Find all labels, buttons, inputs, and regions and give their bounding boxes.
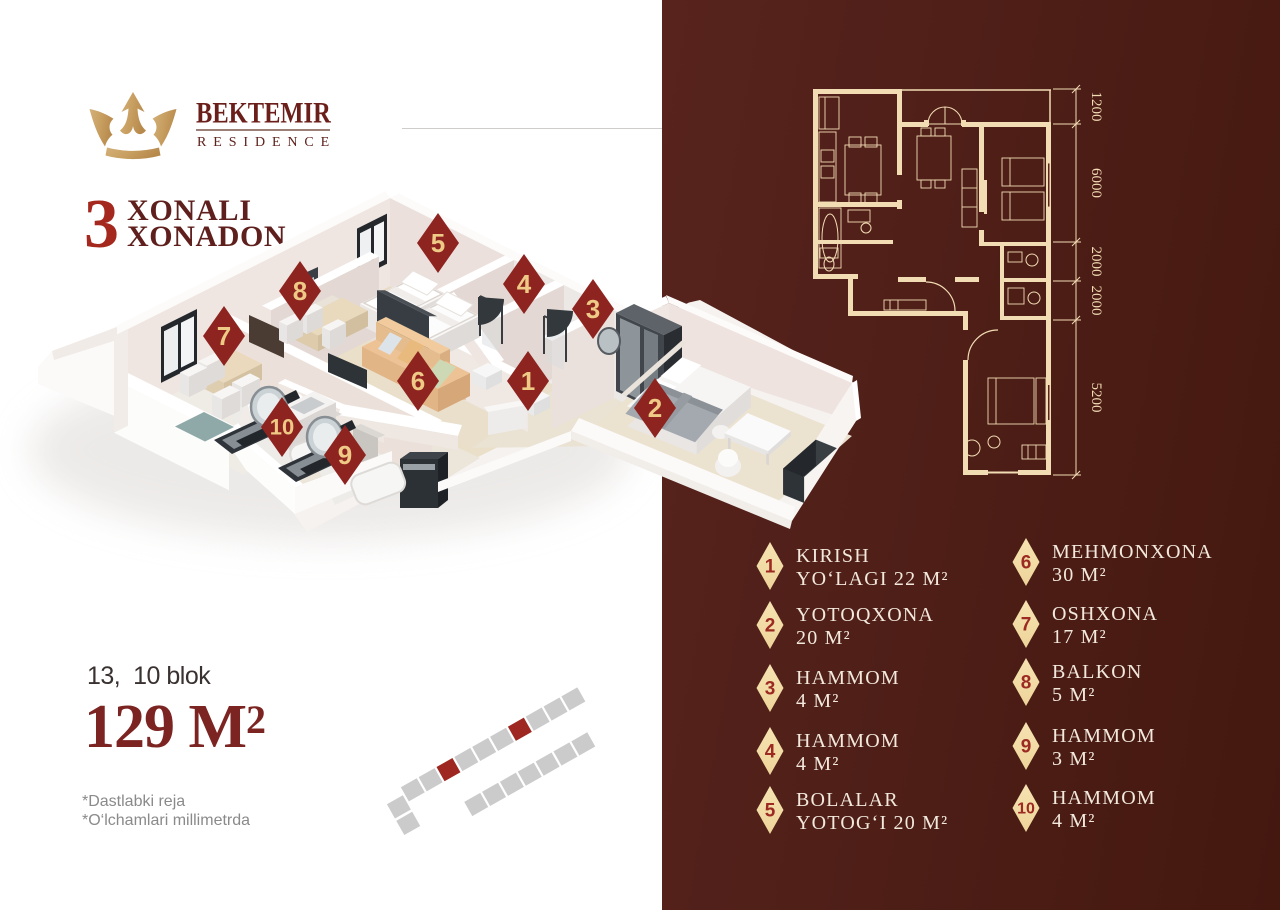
svg-text:3: 3 [765,678,776,699]
svg-text:8: 8 [1021,672,1032,693]
svg-text:4 M²: 4 M² [796,753,840,775]
svg-text:2000: 2000 [1088,247,1104,277]
svg-text:8: 8 [293,276,307,306]
svg-text:1: 1 [521,366,535,396]
svg-text:YOTOQXONA: YOTOQXONA [796,604,934,626]
svg-text:3: 3 [586,294,600,324]
svg-text:KIRISH: KIRISH [796,545,870,567]
svg-text:30 M²: 30 M² [1052,564,1107,586]
svg-text:OSHXONA: OSHXONA [1052,603,1158,625]
svg-text:HAMMOM: HAMMOM [796,667,900,689]
svg-text:2000: 2000 [1088,286,1104,316]
svg-text:9: 9 [338,440,352,470]
svg-text:5 M²: 5 M² [1052,684,1096,706]
svg-text:9: 9 [1021,736,1032,757]
svg-text:17 M²: 17 M² [1052,626,1107,648]
svg-text:4 M²: 4 M² [796,690,840,712]
svg-text:1200: 1200 [1088,92,1104,122]
svg-text:6: 6 [411,366,425,396]
svg-text:7: 7 [217,321,231,351]
svg-text:2: 2 [765,615,776,636]
svg-text:MEHMONXONA: MEHMONXONA [1052,541,1213,563]
svg-text:YOTOG‘I 20 M²: YOTOG‘I 20 M² [796,812,948,834]
svg-text:1: 1 [765,556,776,577]
svg-text:10: 10 [270,414,294,439]
svg-text:3 M²: 3 M² [1052,748,1096,770]
svg-text:BALKON: BALKON [1052,661,1143,683]
svg-text:2: 2 [648,393,662,423]
svg-text:BOLALAR: BOLALAR [796,789,899,811]
svg-text:YO‘LAGI 22 M²: YO‘LAGI 22 M² [796,568,949,590]
svg-text:4 M²: 4 M² [1052,810,1096,832]
svg-text:6000: 6000 [1088,168,1104,198]
svg-text:5: 5 [765,800,776,821]
svg-text:4: 4 [517,269,532,299]
svg-text:HAMMOM: HAMMOM [1052,787,1156,809]
svg-text:HAMMOM: HAMMOM [796,730,900,752]
svg-text:6: 6 [1021,552,1032,573]
svg-text:7: 7 [1021,614,1032,635]
svg-text:4: 4 [765,741,776,762]
svg-text:10: 10 [1017,800,1035,817]
svg-text:5: 5 [431,228,445,258]
svg-text:20 M²: 20 M² [796,627,851,649]
svg-text:HAMMOM: HAMMOM [1052,725,1156,747]
svg-text:5200: 5200 [1088,383,1104,413]
